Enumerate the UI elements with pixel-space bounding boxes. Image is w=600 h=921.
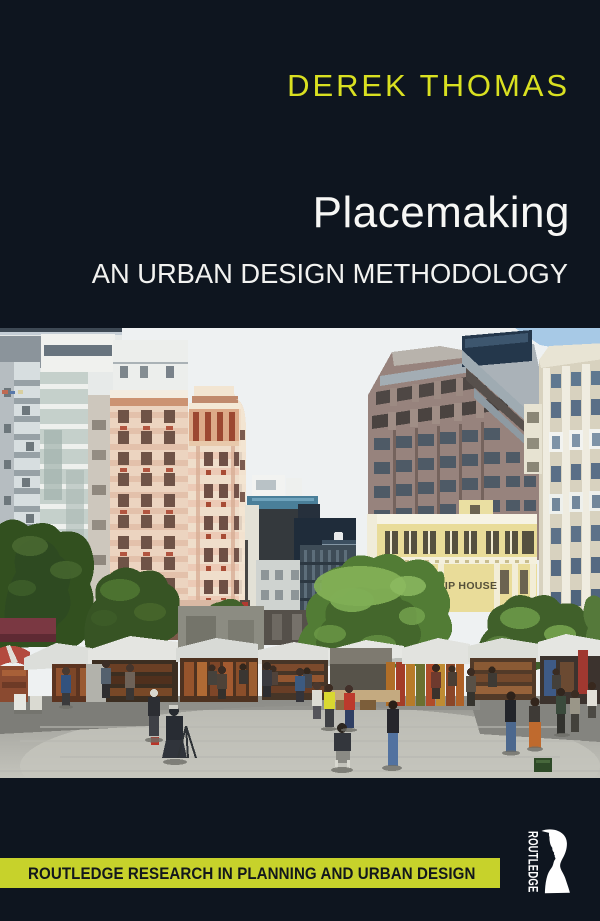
- svg-text:ROUTLEDGE: ROUTLEDGE: [525, 831, 541, 893]
